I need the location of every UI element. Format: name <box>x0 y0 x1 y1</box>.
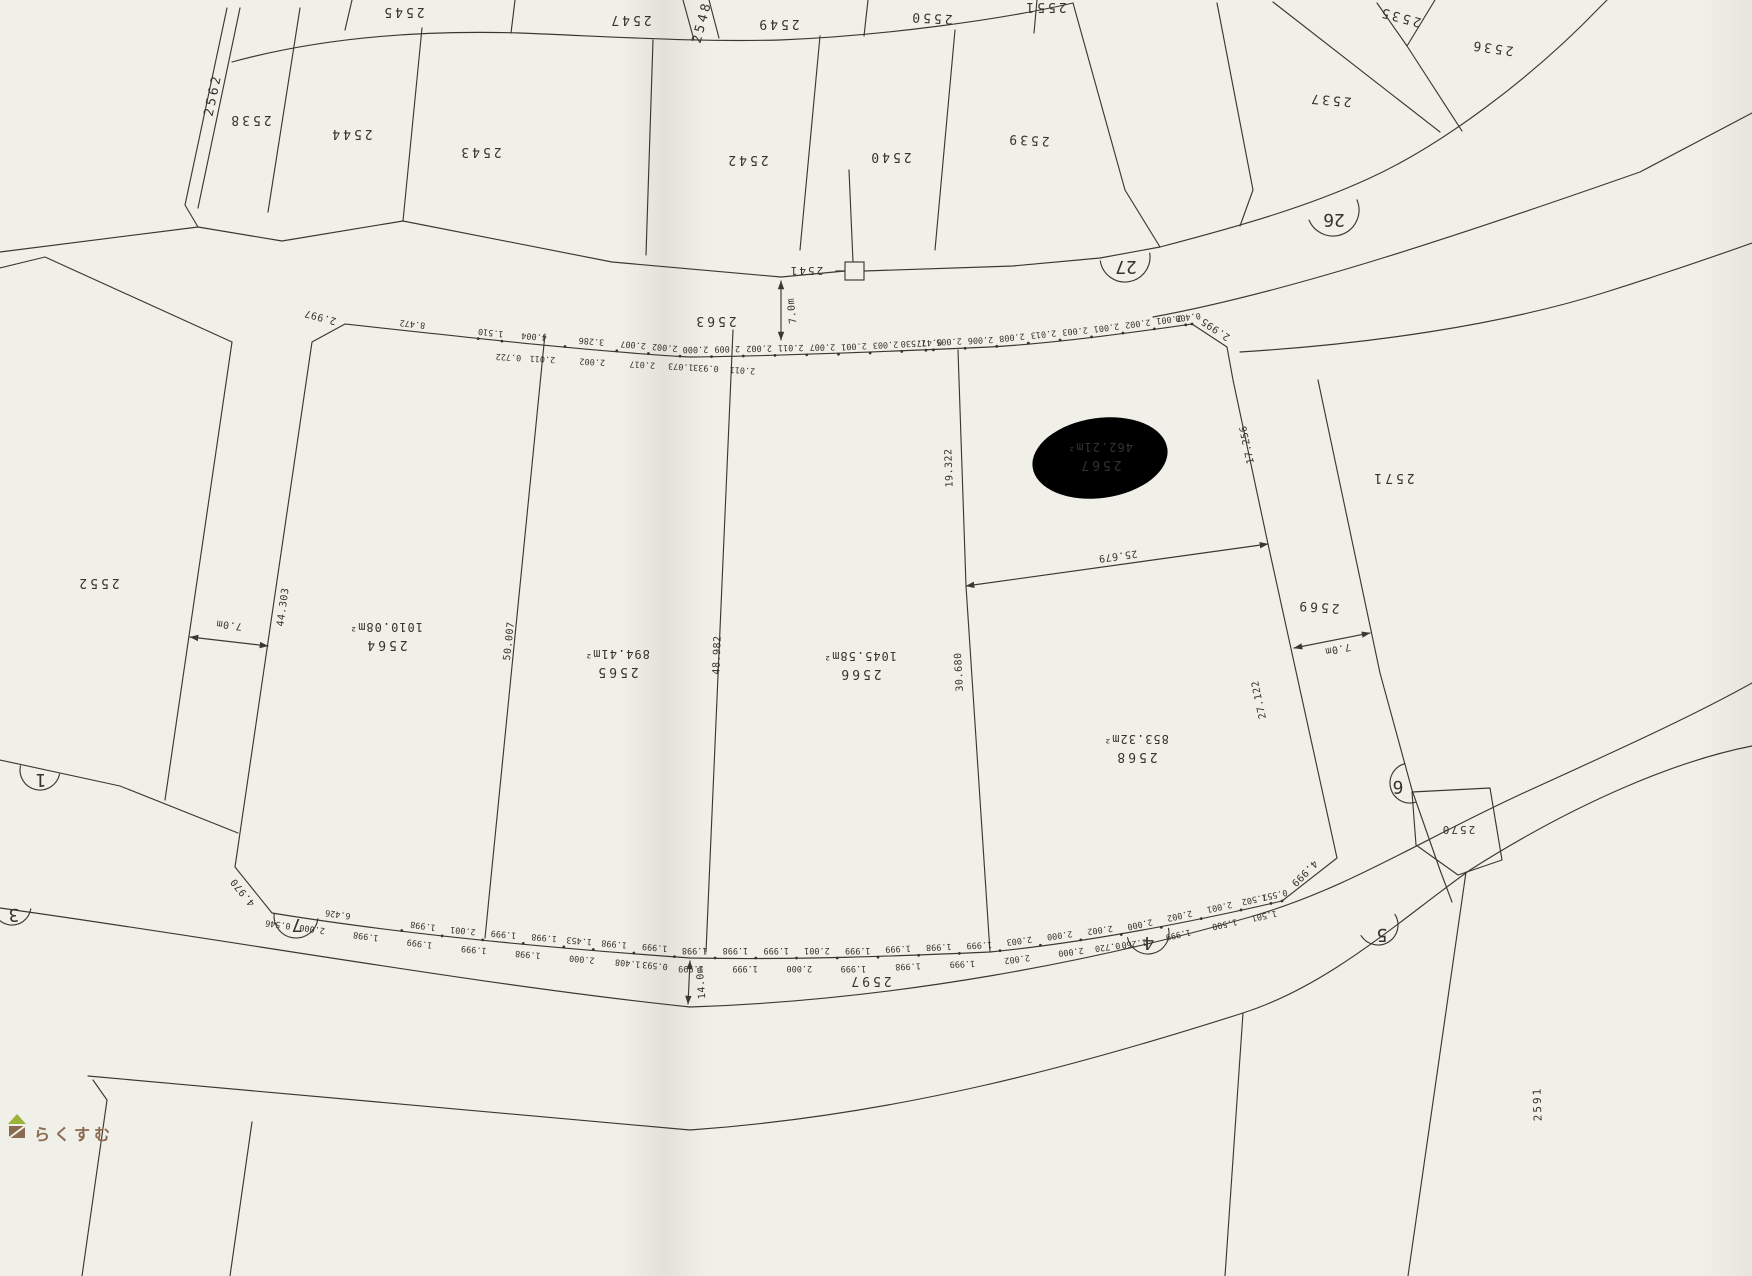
parcel-label-2551: 2551 <box>1023 0 1066 14</box>
survey-point-dot <box>925 349 928 352</box>
survey-point-dot <box>964 347 967 350</box>
parcel-area-2567: 462.21m² <box>1067 440 1133 454</box>
survey-point-dot <box>754 957 757 960</box>
survey-point-dot <box>1153 328 1156 331</box>
parcel-label-2569: 2569 <box>1296 598 1340 616</box>
survey-point-dot <box>592 948 595 951</box>
survey-point-dot <box>673 955 676 958</box>
parcel-label-2570: 2570 <box>1441 823 1476 836</box>
survey-point-dot <box>1281 900 1284 903</box>
survey-point-dot <box>742 355 745 358</box>
dim-19322: 19.322 <box>943 448 955 487</box>
survey-point-dot <box>1027 342 1030 345</box>
survey-point-dot <box>774 354 777 357</box>
parcel-label-2545: 2545 <box>381 4 424 19</box>
fold-crease <box>622 0 708 1276</box>
parcel-area-2566: 1045.58m² <box>823 649 897 663</box>
chain-dimension-value: 2.003 <box>872 339 898 350</box>
parcel-number-2565: 2565 <box>595 664 638 679</box>
chain-dimension-value: 1.998 <box>682 945 708 955</box>
chain-dimension-value: 2.000 <box>786 963 812 973</box>
chain-dimension-value: 2.007 <box>620 338 646 350</box>
chain-dimension-value: 1.999 <box>732 963 758 973</box>
survey-point-dot <box>795 957 798 960</box>
survey-point-dot <box>400 929 403 932</box>
chain-dimension-value: 1.998 <box>895 960 921 971</box>
survey-point-dot <box>837 353 840 356</box>
parcel-area-2565: 894.41m² <box>584 647 650 661</box>
chain-dimension-value: 2.000 <box>683 344 709 354</box>
parcel-number-2568: 2568 <box>1114 749 1157 764</box>
chain-dimension-value: 2.002 <box>579 355 605 366</box>
chain-dimension-value: 1.999 <box>966 939 992 950</box>
survey-point-dot <box>869 352 872 355</box>
road-number-1: 1 <box>36 769 47 790</box>
survey-point-dot <box>1240 909 1243 912</box>
parcel-label-2549: 2549 <box>756 16 799 31</box>
road-number-5: 5 <box>1377 924 1388 945</box>
survey-point-dot <box>1122 332 1125 335</box>
road-number-26: 26 <box>1323 209 1345 230</box>
survey-point-dot <box>877 956 880 959</box>
chain-dimension-value: 1.999 <box>678 963 704 973</box>
chain-dimension-value: 0.933 <box>693 362 719 373</box>
scanned-cadastral-map: 26 27 7 1 3 4 5 6 2545 2547 2548 2549 25… <box>0 0 1752 1276</box>
survey-point-dot <box>805 353 808 356</box>
paper-background <box>0 0 1752 1276</box>
survey-point-dot <box>522 942 525 945</box>
chain-dimension-value: 2.006 <box>967 334 993 345</box>
map-canvas: 26 27 7 1 3 4 5 6 2545 2547 2548 2549 25… <box>0 0 1752 1276</box>
survey-point-dot <box>917 954 920 957</box>
chain-dimension-value: 4.004 <box>521 330 547 342</box>
road-number-6: 6 <box>1393 776 1404 797</box>
parcel-area-2568: 853.32m² <box>1103 732 1169 746</box>
survey-point-dot <box>481 938 484 941</box>
road-number-3: 3 <box>9 904 20 925</box>
parcel-label-2550: 2550 <box>909 9 953 26</box>
survey-point-dot <box>1184 323 1187 326</box>
chain-dimension-value: 2.009 <box>714 343 740 353</box>
chain-dimension-value: 2.011 <box>529 353 555 364</box>
watermark-text: らくすむ <box>34 1125 114 1144</box>
parcel-label-2540: 2540 <box>868 149 911 164</box>
survey-point-dot <box>932 348 935 351</box>
chain-dimension-value: 1.998 <box>926 941 952 952</box>
survey-point-dot <box>1160 926 1163 929</box>
parcel-area-2564: 1010.08m² <box>349 620 423 634</box>
survey-point-dot <box>632 952 635 955</box>
survey-point-dot <box>714 957 717 960</box>
chain-dimension-value: 1.998 <box>723 945 749 955</box>
survey-point-dot <box>1270 902 1273 905</box>
chain-dimension-value: 3.286 <box>578 335 604 347</box>
parcel-label-2571: 2571 <box>1371 470 1414 485</box>
chain-dimension-value: 2.017 <box>629 358 655 369</box>
survey-point-dot <box>836 957 839 960</box>
dim-48982: 48.982 <box>711 635 723 674</box>
survey-point-dot <box>647 352 650 355</box>
parcel-label-2563: 2563 <box>693 313 736 328</box>
survey-point-dot <box>679 355 682 358</box>
survey-point-dot <box>1079 938 1082 941</box>
survey-point-dot <box>1059 339 1062 342</box>
survey-point-dot <box>477 337 480 340</box>
parcel-label-2543: 2543 <box>458 144 501 159</box>
parcel-label-2544: 2544 <box>329 126 372 141</box>
parcel-number-2564: 2564 <box>364 637 407 652</box>
survey-point-dot <box>1090 335 1093 338</box>
parcel-label-2591: 2591 <box>1530 1087 1544 1122</box>
survey-point-dot <box>995 345 998 348</box>
parcel-label-2539: 2539 <box>1006 131 1050 148</box>
parcel-label-2597: 2597 <box>848 973 891 988</box>
chain-dimension-value: 2.011 <box>778 342 804 352</box>
chain-dimension-value: 2.001 <box>804 945 830 955</box>
dim-30680: 30.680 <box>953 652 966 692</box>
chain-dimension-value: 1.999 <box>841 963 867 973</box>
chain-dimension-value: 1.999 <box>949 958 975 969</box>
survey-point-dot <box>501 340 504 343</box>
chain-dimension-value: 1.073 <box>668 360 694 371</box>
survey-marker-2541 <box>845 262 864 280</box>
parcel-label-2541: 2541 <box>789 264 824 277</box>
chain-dimension-value: 2.007 <box>810 341 836 351</box>
chain-dimension-value: 2.002 <box>746 342 772 352</box>
survey-point-dot <box>1120 933 1123 936</box>
chain-dimension-value: 1.999 <box>763 945 789 955</box>
chain-dimension-value: 1.999 <box>885 943 911 954</box>
survey-point-dot <box>900 350 903 353</box>
scan-edge-shadow <box>1700 0 1752 1276</box>
survey-point-dot <box>615 349 618 352</box>
chain-dimension-value: 0.722 <box>495 351 521 362</box>
survey-point-dot <box>1200 917 1203 920</box>
survey-point-dot <box>710 355 713 358</box>
parcel-label-2547: 2547 <box>608 12 651 27</box>
survey-point-dot <box>1039 944 1042 947</box>
survey-point-dot <box>564 345 567 348</box>
survey-point-dot <box>441 935 444 938</box>
chain-dimension-value: 2.001 <box>841 340 867 351</box>
parcel-number-2567: 2567 <box>1078 457 1121 472</box>
survey-point-dot <box>1191 323 1194 326</box>
survey-point-dot <box>958 952 961 955</box>
chain-dimension-value: 2.005 <box>936 335 962 346</box>
parcel-label-2542: 2542 <box>725 152 768 167</box>
chain-dimension-value: 1.999 <box>845 945 871 955</box>
parcel-label-2538: 2538 <box>228 112 271 127</box>
parcel-label-2552: 2552 <box>76 575 119 590</box>
parcel-number-2566: 2566 <box>838 666 881 681</box>
chain-dimension-value: 2.011 <box>729 364 755 375</box>
survey-point-dot <box>999 949 1002 952</box>
road-number-27: 27 <box>1115 256 1137 277</box>
chain-dimension-value: 2.002 <box>652 341 678 353</box>
survey-point-dot <box>562 946 565 949</box>
